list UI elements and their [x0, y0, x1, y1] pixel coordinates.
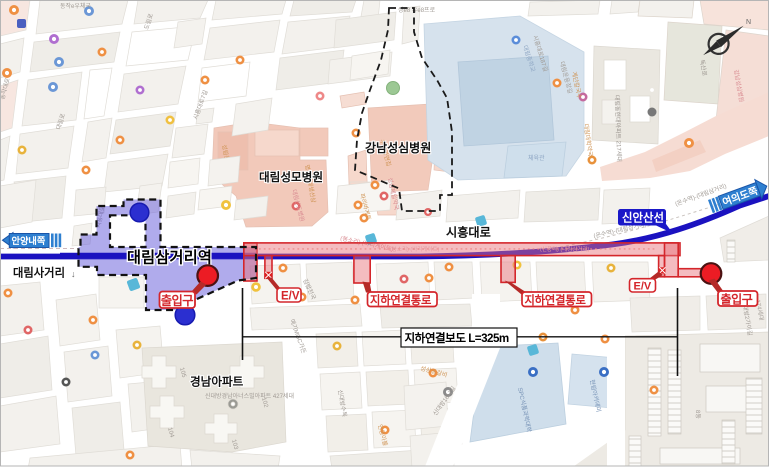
svg-text:지하연결통로: 지하연결통로 [370, 293, 432, 307]
svg-text:출입구: 출입구 [161, 293, 193, 308]
svg-text:지하연결통로: 지하연결통로 [525, 293, 587, 307]
svg-text:신대방경남아너스빌아파트 427세대: 신대방경남아너스빌아파트 427세대 [205, 392, 294, 400]
svg-text:E/V: E/V [281, 291, 300, 303]
svg-text:동작e우체국: 동작e우체국 [60, 2, 91, 10]
svg-text:(신풍역) (대림삼거리): (신풍역) (대림삼거리) [540, 245, 590, 253]
svg-text:대림성모병원: 대림성모병원 [259, 170, 323, 184]
svg-text:대림사거리: 대림사거리 [13, 266, 65, 280]
svg-text:지하연결보도 L=325m: 지하연결보도 L=325m [405, 331, 509, 345]
svg-text:체육관: 체육관 [528, 154, 545, 162]
svg-text:안양내쪽: 안양내쪽 [12, 235, 46, 246]
svg-text:E/V: E/V [634, 280, 652, 292]
svg-text:경남아파트: 경남아파트 [190, 375, 244, 389]
svg-text:↓: ↓ [71, 269, 76, 279]
svg-text:시흥대로: 시흥대로 [446, 225, 491, 240]
svg-text:8동: 8동 [694, 410, 701, 420]
svg-text:(봉소리) (바리게이트): (봉소리) (바리게이트) [390, 245, 440, 253]
svg-text:강남성심병원: 강남성심병원 [365, 140, 431, 155]
svg-text:N: N [746, 19, 751, 26]
svg-text:출입구: 출입구 [721, 292, 753, 307]
svg-text:대림삼거리역: 대림삼거리역 [127, 249, 212, 267]
svg-text:신안산선: 신안산선 [622, 211, 664, 225]
